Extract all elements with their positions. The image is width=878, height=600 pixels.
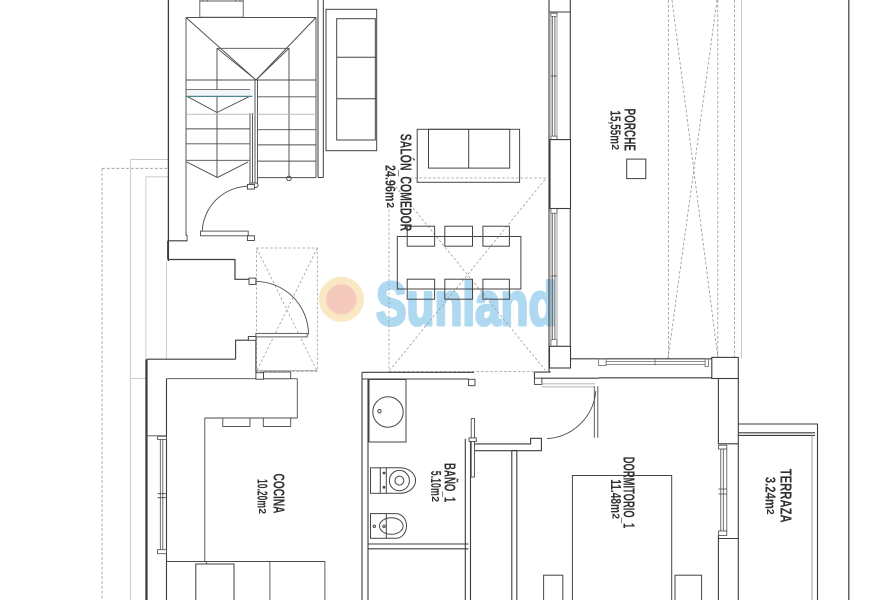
- svg-text:TERRAZA: TERRAZA: [776, 469, 793, 523]
- svg-text:24.96m: 24.96m: [382, 165, 398, 202]
- svg-text:2: 2: [609, 513, 621, 519]
- svg-text:2: 2: [429, 496, 441, 502]
- svg-text:COCINA: COCINA: [270, 474, 287, 514]
- svg-text:5.10m: 5.10m: [427, 471, 443, 496]
- svg-text:15,55m: 15,55m: [607, 111, 623, 145]
- svg-text:3.24m: 3.24m: [762, 477, 778, 509]
- svg-text:10.20m: 10.20m: [254, 479, 270, 508]
- svg-text:2: 2: [384, 202, 396, 208]
- svg-text:2: 2: [256, 508, 268, 514]
- svg-text:2: 2: [764, 509, 776, 515]
- svg-text:Sunland: Sunland: [376, 271, 556, 339]
- svg-text:2: 2: [609, 144, 621, 150]
- svg-text:11.48m: 11.48m: [607, 479, 623, 513]
- svg-text:SALÓN_COMEDOR: SALÓN_COMEDOR: [397, 134, 415, 232]
